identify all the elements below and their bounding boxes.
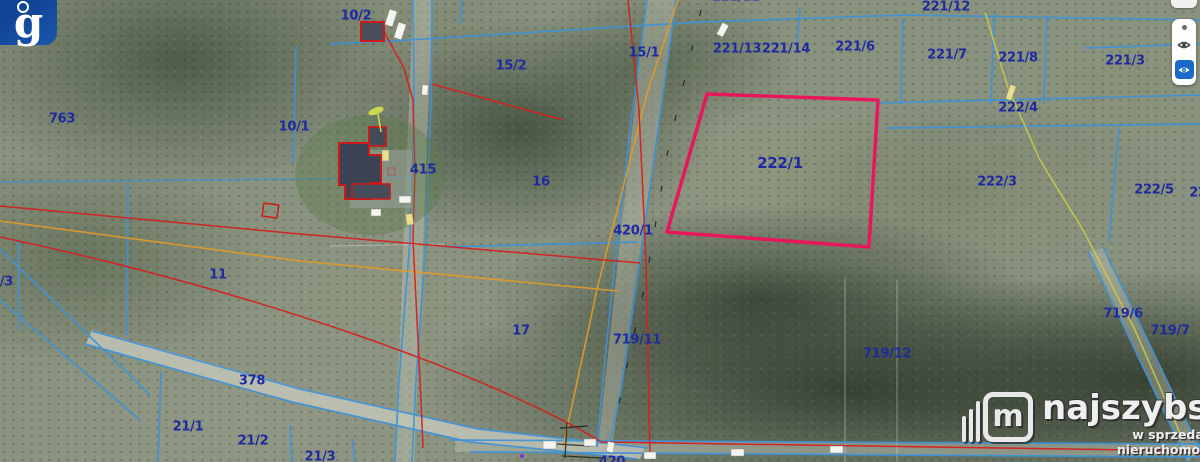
parcel-label-21-2: 21/2 — [238, 434, 269, 449]
layer-visibility-button[interactable] — [1177, 40, 1191, 50]
survey-lines-red — [0, 0, 1200, 455]
parcel-label-378: 378 — [239, 374, 265, 389]
map-viewport[interactable]: 76310/210/115/215/1221/13221/14221/6221/… — [0, 0, 1200, 462]
logo-page-bar — [969, 409, 973, 442]
parcel-label-15-2: 15/2 — [496, 59, 527, 74]
parcel-label-415: 415 — [410, 163, 436, 178]
eye-icon — [1177, 40, 1191, 50]
watermark-brand: najszybsi — [1042, 392, 1200, 424]
logo-page-bar — [976, 401, 980, 442]
parcel-label-420: 420 — [599, 455, 625, 462]
layer-dot-button[interactable] — [1182, 25, 1187, 30]
najszybsi-watermark: m najszybsi w sprzedaży nieruchomości — [962, 392, 1200, 457]
najszybsi-logo-icon: m — [962, 392, 1033, 442]
parcel-label-719-6: 719/6 — [1103, 307, 1142, 322]
parcel-label-763: 763 — [49, 112, 75, 127]
geoportal-logo: g — [0, 0, 57, 45]
parcel-label-719-12: 719/12 — [863, 347, 911, 362]
parcel-label-221-13: 221/13 — [713, 42, 761, 57]
parcel-label-17: 17 — [512, 324, 530, 339]
parcel-label-221-3: 221/3 — [1105, 54, 1144, 69]
layer-visibility-active-button[interactable] — [1175, 60, 1194, 79]
parcel-label-16: 16 — [532, 175, 550, 190]
clipped-toolbar-button[interactable] — [1171, 0, 1197, 8]
parcel-label-222-5: 222/5 — [1134, 183, 1173, 198]
dot-icon — [1182, 25, 1187, 30]
parcel-label-221-6: 221/6 — [835, 40, 874, 55]
parcel-label-221-7: 221/7 — [927, 48, 966, 63]
parcel-label-221-12: 221/12 — [922, 0, 970, 15]
parcel-label-10-2: 10/2 — [341, 9, 372, 24]
layer-panel — [1172, 19, 1196, 85]
parcel-label-4-3: 4/3 — [0, 275, 13, 290]
parcel-label-222-3: 222/3 — [977, 175, 1016, 190]
parcel-label-221-14: 221/14 — [762, 42, 810, 57]
parcel-label-222-4: 222/4 — [998, 101, 1037, 116]
parcel-label-10-1: 10/1 — [279, 120, 310, 135]
watermark-tagline: w sprzedaży nieruchomości — [1042, 427, 1200, 457]
parcel-label-15-1: 15/1 — [629, 46, 660, 61]
parcel-label-222-2: 222/2 — [1189, 186, 1200, 201]
parcel-label-222-1: 222/1 — [757, 154, 803, 172]
logo-m-box: m — [983, 392, 1033, 442]
eye-filled-icon — [1177, 65, 1191, 75]
logo-ring-icon — [17, 1, 29, 13]
parcel-label-719-7: 719/7 — [1150, 324, 1189, 339]
parcel-label-21-3: 21/3 — [305, 450, 336, 462]
parcel-label-221-8: 221/8 — [998, 51, 1037, 66]
parcel-label-11: 11 — [209, 268, 227, 283]
parcel-label-719-11: 719/11 — [613, 333, 661, 348]
parcel-label-420-1: 420/1 — [613, 224, 652, 239]
parcel-label-21-1: 21/1 — [173, 420, 204, 435]
parcel-label-221-11: 221/11 — [712, 0, 760, 5]
logo-page-bar — [962, 416, 966, 442]
